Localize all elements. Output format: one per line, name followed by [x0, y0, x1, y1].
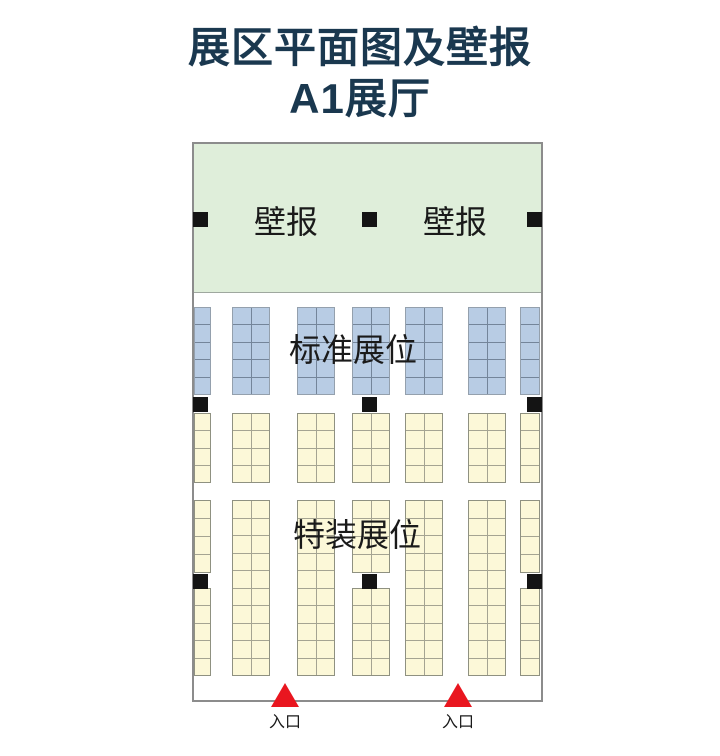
- booth-cell: [372, 466, 390, 482]
- booth-cell: [469, 501, 487, 518]
- booth-cell: [521, 606, 539, 622]
- booth-cell: [233, 378, 251, 394]
- booth-cell: [406, 589, 424, 606]
- booth-cell: [317, 378, 335, 394]
- pillar-marker: [193, 397, 208, 412]
- booth-cell: [195, 537, 210, 554]
- booth-cell: [353, 624, 371, 640]
- booth-cell: [425, 501, 443, 518]
- page: 展区平面图及壁报 A1展厅 壁报 壁报 标准展位 特装展位 入口入口: [0, 0, 720, 756]
- booth-cell: [406, 659, 424, 676]
- booth-cell: [469, 431, 487, 447]
- entrance-arrow-icon: [444, 683, 472, 707]
- booth-cell: [521, 431, 539, 447]
- booth-cell: [372, 659, 390, 675]
- booth-cell: [233, 343, 251, 359]
- booth-cell: [488, 378, 506, 394]
- booth-cell: [252, 378, 270, 394]
- special-booth-block: [232, 413, 270, 483]
- special-booth-zone-label: 特装展位: [293, 517, 421, 553]
- booth-cell: [252, 606, 270, 623]
- booth-cell: [353, 606, 371, 622]
- booth-cell: [425, 449, 443, 465]
- booth-cell: [488, 466, 506, 482]
- booth-cell: [252, 466, 270, 482]
- booth-cell: [353, 641, 371, 657]
- booth-cell: [353, 449, 371, 465]
- booth-cell: [469, 519, 487, 536]
- booth-cell: [252, 624, 270, 641]
- booth-cell: [317, 466, 335, 482]
- special-booth-block: [194, 500, 211, 573]
- booth-cell: [372, 431, 390, 447]
- booth-cell: [195, 431, 210, 447]
- booth-cell: [195, 360, 210, 376]
- pillar-marker: [527, 397, 542, 412]
- title-line-1: 展区平面图及壁报: [0, 22, 720, 73]
- booth-cell: [233, 431, 251, 447]
- booth-cell: [233, 466, 251, 482]
- pillar-marker: [362, 574, 377, 589]
- special-booth-block: [352, 413, 390, 483]
- special-booth-block: [405, 413, 443, 483]
- booth-cell: [298, 624, 316, 641]
- booth-cell: [521, 449, 539, 465]
- booth-cell: [317, 308, 335, 324]
- booth-cell: [233, 501, 251, 518]
- special-booth-block: [520, 500, 540, 573]
- booth-cell: [406, 431, 424, 447]
- special-booth-block: [194, 588, 211, 676]
- booth-cell: [521, 414, 539, 430]
- booth-cell: [406, 414, 424, 430]
- booth-cell: [195, 414, 210, 430]
- booth-cell: [195, 606, 210, 622]
- booth-cell: [317, 449, 335, 465]
- booth-cell: [252, 536, 270, 553]
- booth-cell: [425, 571, 443, 588]
- booth-cell: [195, 589, 210, 605]
- floor-plan: 壁报 壁报 标准展位 特装展位 入口入口: [192, 142, 543, 702]
- booth-cell: [195, 378, 210, 394]
- booth-cell: [195, 325, 210, 341]
- booth-cell: [372, 501, 390, 518]
- booth-cell: [488, 360, 506, 376]
- booth-cell: [488, 641, 506, 658]
- booth-cell: [317, 606, 335, 623]
- booth-cell: [425, 325, 443, 341]
- special-booth-block: [468, 413, 506, 483]
- special-booth-block: [520, 588, 540, 676]
- pillar-marker: [362, 212, 377, 227]
- standard-booth-block: [520, 307, 540, 395]
- booth-cell: [317, 641, 335, 658]
- booth-cell: [425, 414, 443, 430]
- booth-cell: [488, 554, 506, 571]
- booth-cell: [233, 606, 251, 623]
- booth-cell: [195, 624, 210, 640]
- booth-cell: [372, 606, 390, 622]
- booth-cell: [252, 554, 270, 571]
- booth-cell: [233, 659, 251, 676]
- booth-cell: [372, 449, 390, 465]
- booth-cell: [488, 519, 506, 536]
- booth-cell: [425, 360, 443, 376]
- booth-cell: [317, 659, 335, 676]
- booth-cell: [469, 360, 487, 376]
- booth-cell: [469, 554, 487, 571]
- booth-cell: [521, 325, 539, 341]
- booth-cell: [252, 431, 270, 447]
- booth-cell: [488, 431, 506, 447]
- booth-cell: [233, 554, 251, 571]
- booth-cell: [353, 589, 371, 605]
- booth-cell: [406, 308, 424, 324]
- booth-cell: [406, 501, 424, 518]
- standard-booth-zone-label: 标准展位: [289, 332, 417, 368]
- booth-cell: [406, 571, 424, 588]
- booth-cell: [469, 449, 487, 465]
- booth-cell: [298, 308, 316, 324]
- booth-cell: [469, 536, 487, 553]
- booth-cell: [521, 519, 539, 536]
- booth-cell: [425, 378, 443, 394]
- pillar-marker: [193, 574, 208, 589]
- booth-cell: [488, 571, 506, 588]
- booth-cell: [488, 589, 506, 606]
- special-booth-block: [468, 500, 506, 676]
- booth-cell: [425, 519, 443, 536]
- booth-cell: [298, 466, 316, 482]
- booth-cell: [298, 571, 316, 588]
- booth-cell: [406, 624, 424, 641]
- booth-cell: [521, 537, 539, 554]
- booth-cell: [425, 624, 443, 641]
- booth-cell: [317, 589, 335, 606]
- booth-cell: [298, 501, 316, 518]
- entrance-label: 入口: [269, 714, 301, 732]
- booth-cell: [298, 606, 316, 623]
- booth-cell: [298, 659, 316, 676]
- booth-cell: [406, 466, 424, 482]
- pillar-marker: [527, 574, 542, 589]
- booth-cell: [406, 449, 424, 465]
- booth-cell: [488, 449, 506, 465]
- booth-cell: [317, 501, 335, 518]
- booth-cell: [233, 519, 251, 536]
- booth-cell: [317, 554, 335, 571]
- booth-cell: [252, 449, 270, 465]
- standard-booth-block: [468, 307, 506, 395]
- booth-cell: [252, 501, 270, 518]
- booth-cell: [195, 308, 210, 324]
- special-booth-block: [352, 588, 390, 676]
- booth-cell: [252, 325, 270, 341]
- booth-cell: [425, 431, 443, 447]
- poster-zone-label-right: 壁报: [423, 204, 487, 240]
- standard-booth-block: [194, 307, 211, 395]
- title-line-2: A1展厅: [0, 73, 720, 124]
- booth-cell: [425, 641, 443, 658]
- booth-cell: [425, 589, 443, 606]
- booth-cell: [469, 378, 487, 394]
- booth-cell: [406, 554, 424, 571]
- booth-cell: [195, 659, 210, 675]
- booth-cell: [195, 343, 210, 359]
- booth-cell: [233, 308, 251, 324]
- booth-cell: [425, 659, 443, 676]
- booth-cell: [353, 414, 371, 430]
- booth-cell: [521, 343, 539, 359]
- standard-booth-block: [232, 307, 270, 395]
- pillar-marker: [527, 212, 542, 227]
- booth-cell: [425, 466, 443, 482]
- booth-cell: [252, 571, 270, 588]
- booth-cell: [298, 641, 316, 658]
- booth-cell: [469, 343, 487, 359]
- booth-cell: [425, 554, 443, 571]
- booth-cell: [195, 519, 210, 536]
- booth-cell: [425, 536, 443, 553]
- booth-cell: [488, 308, 506, 324]
- booth-cell: [372, 555, 390, 572]
- booth-cell: [488, 606, 506, 623]
- booth-cell: [469, 589, 487, 606]
- booth-cell: [521, 378, 539, 394]
- booth-cell: [406, 641, 424, 658]
- booth-cell: [521, 589, 539, 605]
- entrance-arrow-icon: [271, 683, 299, 707]
- booth-cell: [469, 659, 487, 676]
- booth-cell: [521, 501, 539, 518]
- booth-cell: [469, 308, 487, 324]
- booth-cell: [252, 589, 270, 606]
- booth-cell: [488, 659, 506, 676]
- booth-cell: [233, 325, 251, 341]
- booth-cell: [372, 308, 390, 324]
- booth-cell: [469, 466, 487, 482]
- entrance-label: 入口: [442, 714, 474, 732]
- booth-cell: [195, 449, 210, 465]
- booth-cell: [425, 343, 443, 359]
- pillar-marker: [193, 212, 208, 227]
- booth-cell: [195, 641, 210, 657]
- booth-cell: [521, 360, 539, 376]
- booth-cell: [353, 431, 371, 447]
- booth-cell: [488, 624, 506, 641]
- booth-cell: [298, 378, 316, 394]
- booth-cell: [252, 641, 270, 658]
- booth-cell: [353, 555, 371, 572]
- booth-cell: [425, 308, 443, 324]
- booth-cell: [372, 378, 390, 394]
- special-booth-block: [520, 413, 540, 483]
- booth-cell: [372, 624, 390, 640]
- booth-cell: [233, 571, 251, 588]
- booth-cell: [521, 555, 539, 572]
- booth-cell: [488, 536, 506, 553]
- booth-cell: [317, 431, 335, 447]
- booth-cell: [406, 378, 424, 394]
- booth-cell: [353, 659, 371, 675]
- booth-cell: [195, 466, 210, 482]
- booth-cell: [252, 360, 270, 376]
- pillar-marker: [362, 397, 377, 412]
- booth-cell: [469, 325, 487, 341]
- special-booth-block: [297, 413, 335, 483]
- booth-cell: [252, 343, 270, 359]
- booth-cell: [425, 606, 443, 623]
- booth-cell: [521, 624, 539, 640]
- booth-cell: [469, 571, 487, 588]
- booth-cell: [317, 414, 335, 430]
- booth-cell: [252, 519, 270, 536]
- page-title: 展区平面图及壁报 A1展厅: [0, 22, 720, 124]
- booth-cell: [233, 449, 251, 465]
- booth-cell: [195, 555, 210, 572]
- booth-cell: [469, 641, 487, 658]
- booth-cell: [488, 414, 506, 430]
- booth-cell: [252, 308, 270, 324]
- booth-cell: [469, 606, 487, 623]
- booth-cell: [298, 414, 316, 430]
- booth-cell: [521, 659, 539, 675]
- booth-cell: [298, 431, 316, 447]
- booth-cell: [521, 466, 539, 482]
- booth-cell: [252, 414, 270, 430]
- booth-cell: [488, 325, 506, 341]
- booth-cell: [298, 554, 316, 571]
- booth-cell: [406, 606, 424, 623]
- booth-cell: [488, 501, 506, 518]
- special-booth-block: [194, 413, 211, 483]
- booth-cell: [252, 659, 270, 676]
- booth-cell: [521, 308, 539, 324]
- booth-cell: [488, 343, 506, 359]
- booth-cell: [195, 501, 210, 518]
- booth-cell: [298, 589, 316, 606]
- booth-cell: [521, 641, 539, 657]
- booth-cell: [233, 624, 251, 641]
- booth-cell: [353, 501, 371, 518]
- booth-cell: [317, 571, 335, 588]
- booth-cell: [233, 536, 251, 553]
- special-booth-block: [232, 500, 270, 676]
- booth-cell: [317, 624, 335, 641]
- booth-cell: [469, 624, 487, 641]
- booth-cell: [233, 641, 251, 658]
- booth-cell: [233, 589, 251, 606]
- booth-cell: [353, 308, 371, 324]
- booth-cell: [372, 414, 390, 430]
- booth-cell: [469, 414, 487, 430]
- booth-cell: [372, 589, 390, 605]
- booth-cell: [353, 466, 371, 482]
- booth-cell: [372, 641, 390, 657]
- booth-cell: [353, 378, 371, 394]
- booth-cell: [233, 414, 251, 430]
- booth-cell: [298, 449, 316, 465]
- booth-cell: [233, 360, 251, 376]
- poster-zone-label-left: 壁报: [254, 204, 318, 240]
